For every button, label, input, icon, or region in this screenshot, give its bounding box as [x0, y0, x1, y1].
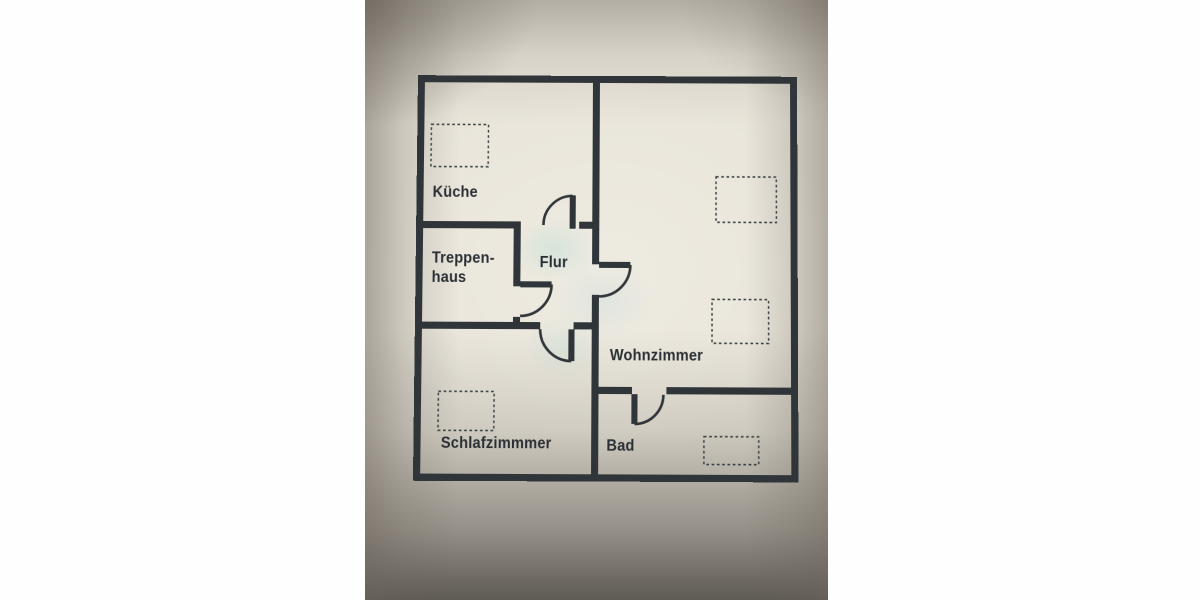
wall-outer-bottom	[413, 474, 799, 483]
door-swing-kitchen	[543, 196, 572, 225]
wall-bathroom-top-right	[666, 387, 791, 395]
room-label-bathroom: Bad	[606, 436, 634, 456]
fixture-kitchen	[431, 124, 489, 166]
wall-outer-right	[790, 77, 799, 483]
wall-bedroom-top	[422, 322, 540, 330]
wall-bedroom-top-stub	[574, 322, 592, 329]
photo-of-screen: Küche Treppen- haus Flur Wohnzimmer Schl…	[365, 0, 828, 600]
wall-kitchen-bottom-stub	[579, 222, 592, 229]
page-background: Küche Treppen- haus Flur Wohnzimmer Schl…	[0, 0, 1200, 600]
wall-kitchen-bottom	[423, 221, 521, 229]
floor-plan: Küche Treppen- haus Flur Wohnzimmer Schl…	[413, 75, 799, 482]
room-label-stairwell-line1: Treppen-	[432, 249, 495, 267]
door-swing-stairwell	[520, 284, 552, 316]
fixture-living-room-upper	[716, 177, 776, 223]
fixture-bedroom	[438, 391, 494, 430]
door-swing-living-room	[599, 265, 630, 297]
wall-center-divider-upper	[592, 83, 600, 264]
wall-stairwell-right-stub	[513, 317, 520, 322]
fixture-bathroom	[704, 437, 759, 465]
door-swing-bedroom	[540, 329, 572, 361]
wall-outer-top	[418, 75, 797, 84]
wall-center-divider-lower	[591, 295, 599, 475]
fixture-living-room-lower	[712, 299, 769, 343]
room-label-stairwell: Treppen- haus	[432, 248, 495, 287]
door-swing-bathroom	[634, 395, 663, 424]
room-label-stairwell-line2: haus	[432, 269, 467, 286]
wall-stairwell-right	[513, 228, 521, 286]
room-label-living-room: Wohnzimmer	[610, 346, 703, 366]
room-label-hallway: Flur	[540, 253, 568, 272]
fixtures	[427, 124, 777, 464]
room-label-bedroom: Schlafzimmmer	[441, 433, 552, 453]
wall-outer-left	[413, 75, 425, 481]
wall-bathroom-top-left	[599, 387, 632, 394]
room-label-kitchen: Küche	[433, 183, 478, 202]
